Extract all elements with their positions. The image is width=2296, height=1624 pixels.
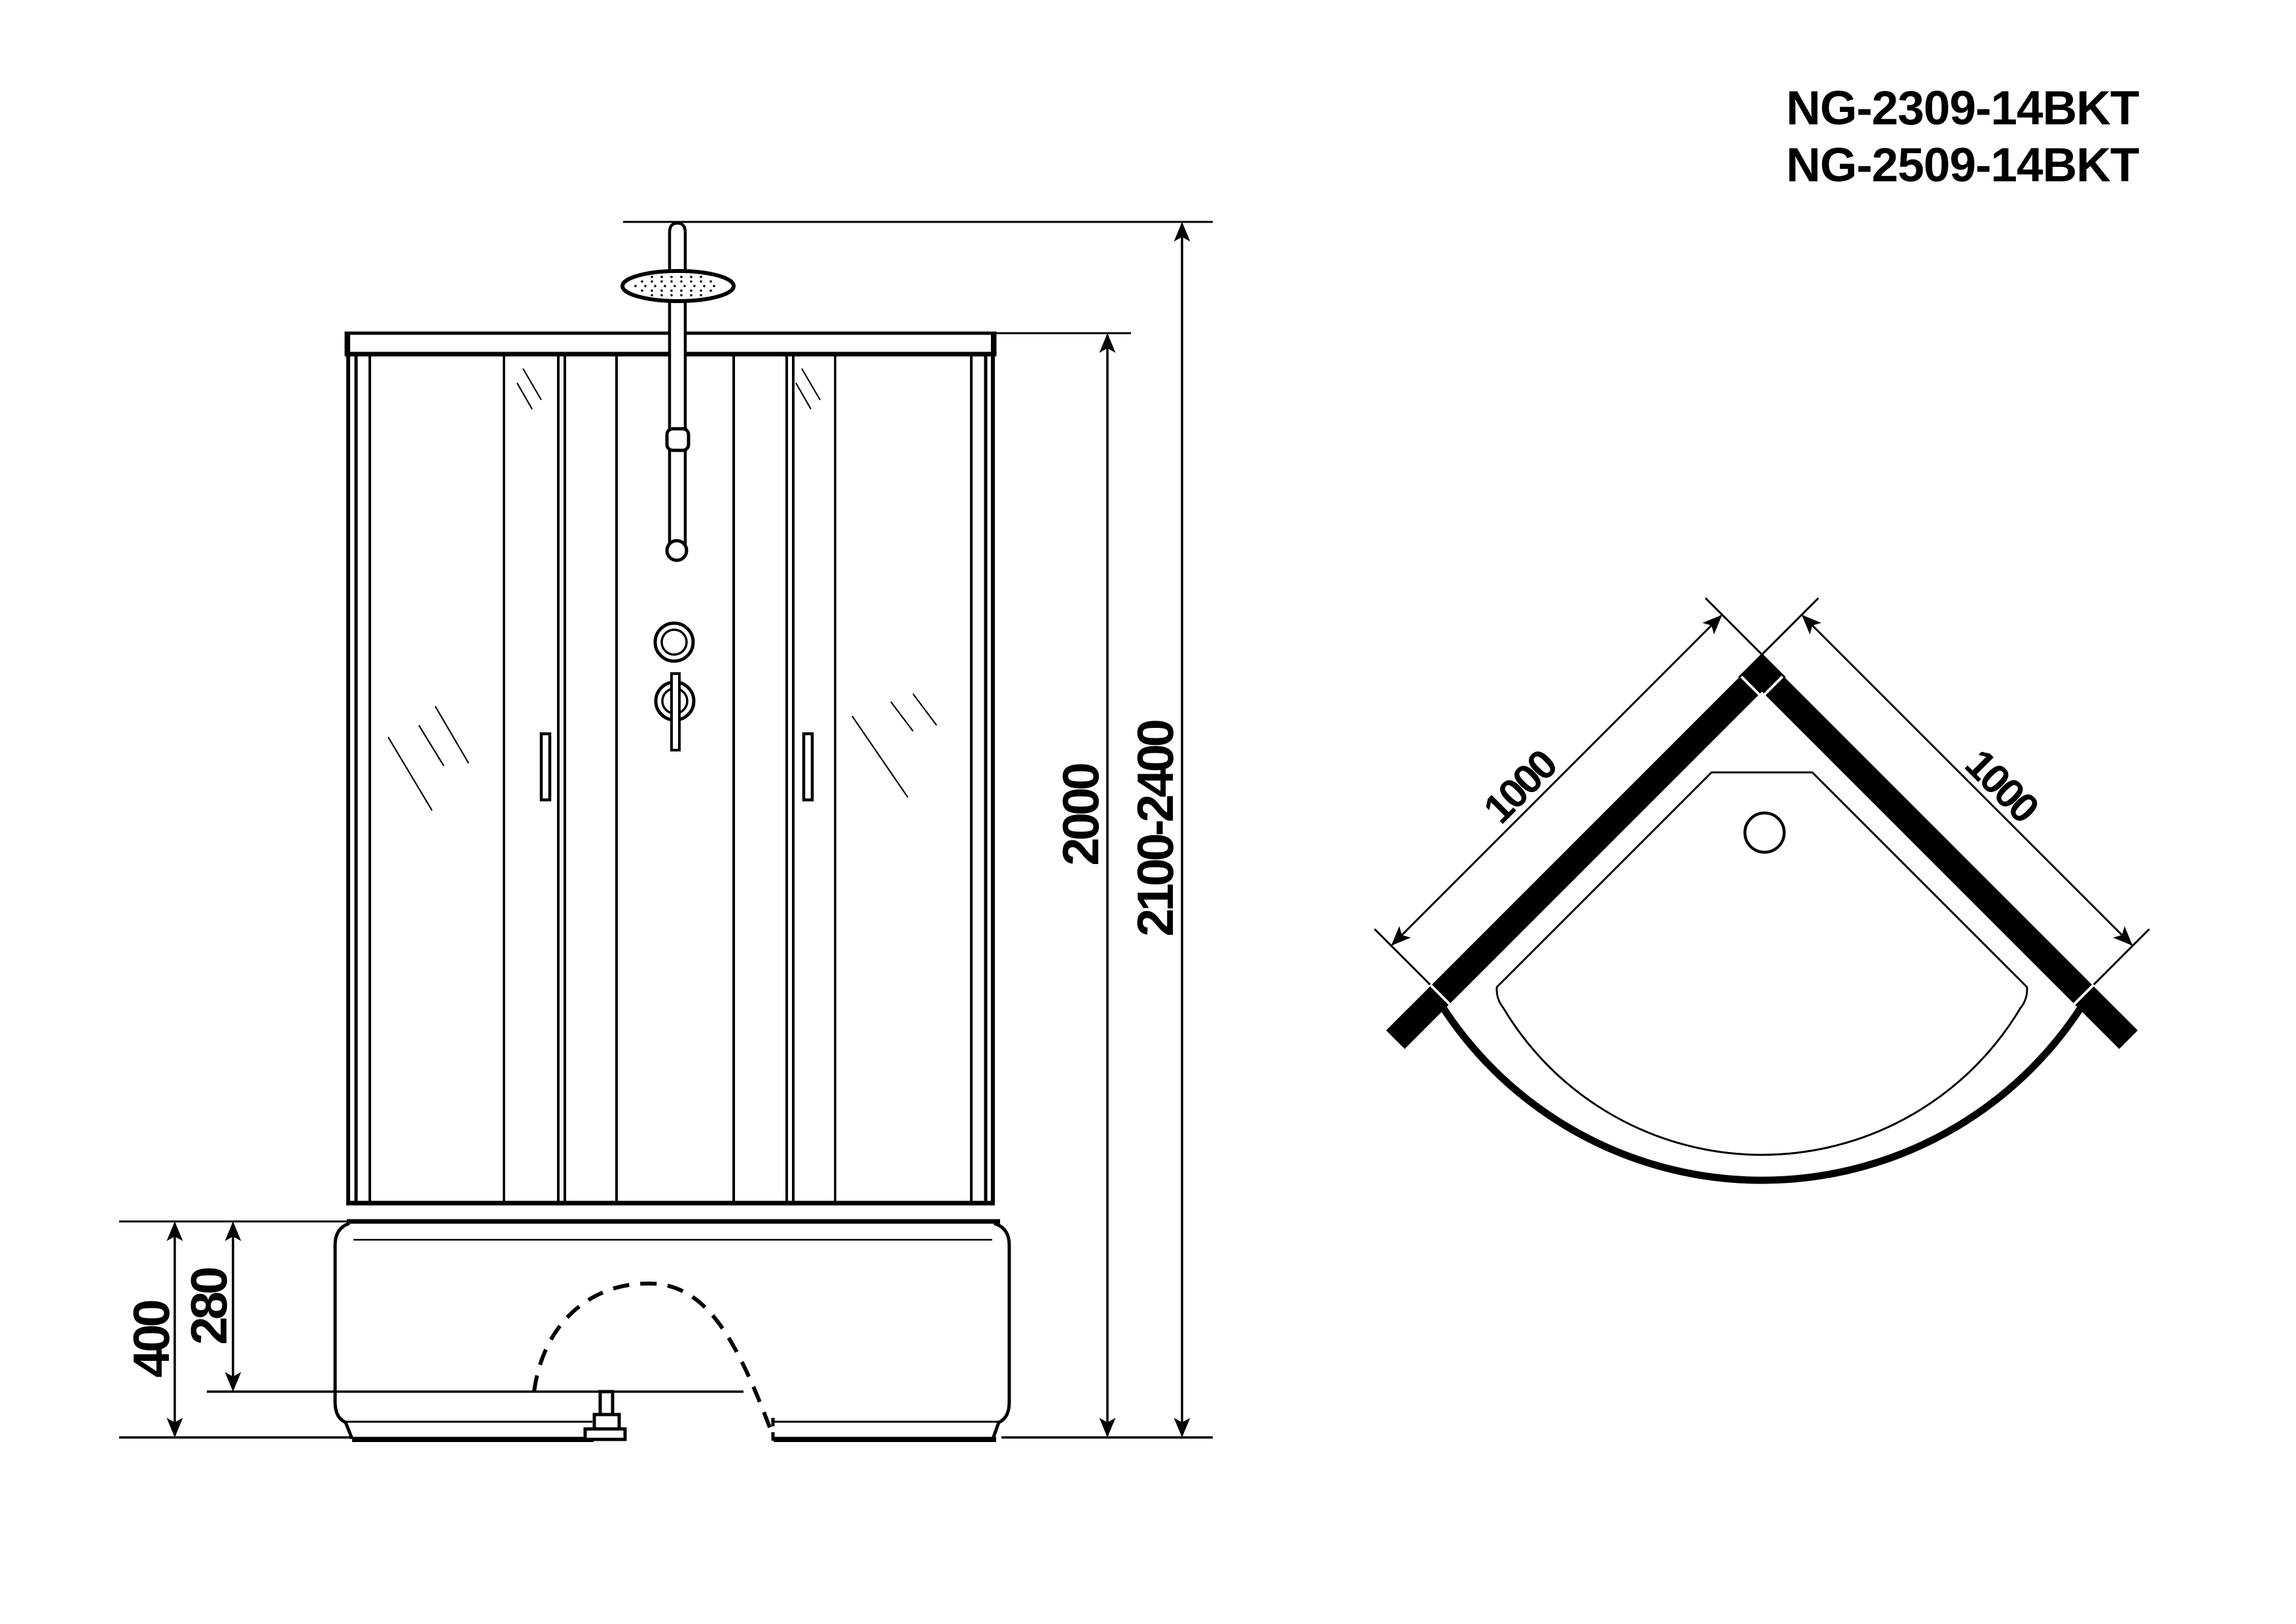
svg-text:400: 400 [122,1301,180,1378]
svg-text:NG-2309-14BKT: NG-2309-14BKT [1786,82,2139,135]
svg-text:280: 280 [180,1268,238,1345]
svg-text:2100-2400: 2100-2400 [1126,720,1184,937]
svg-text:NG-2509-14BKT: NG-2509-14BKT [1786,139,2139,192]
svg-text:2000: 2000 [1052,764,1109,866]
